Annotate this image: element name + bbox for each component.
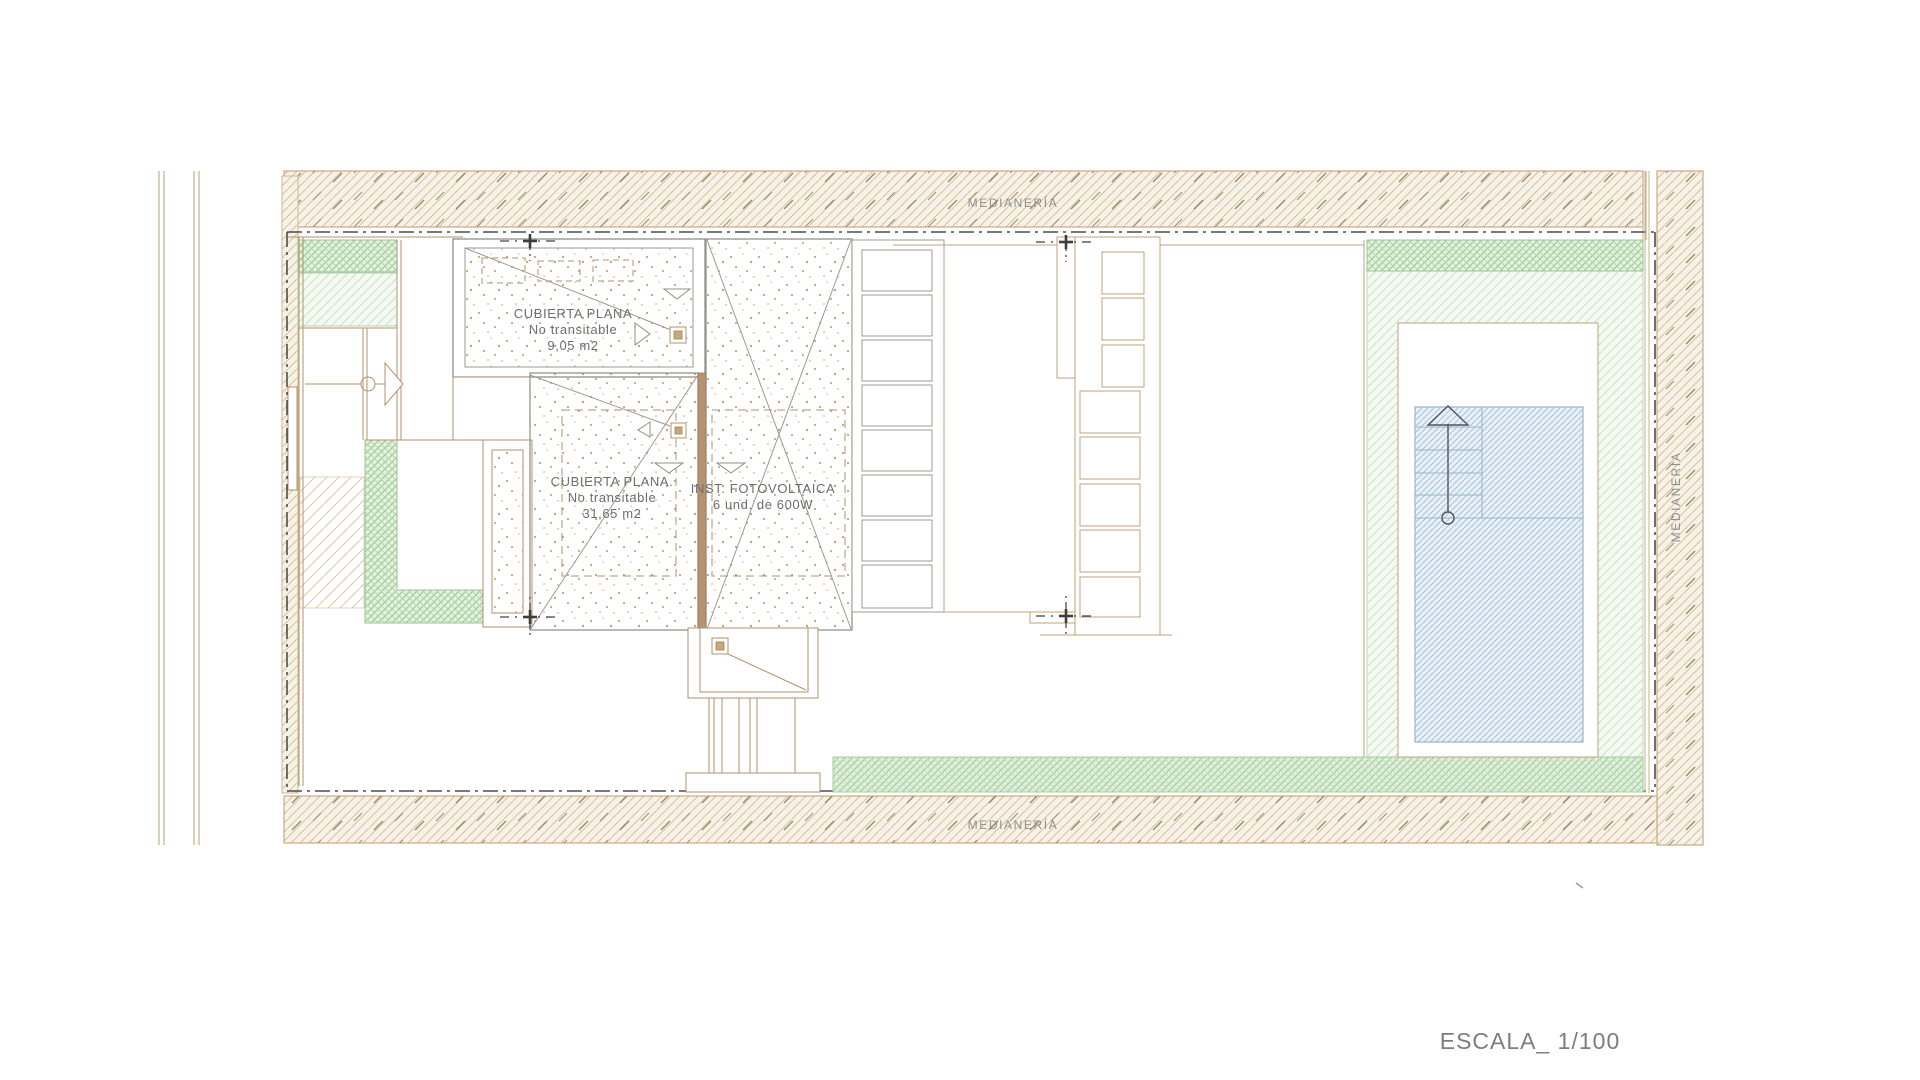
medianeria-bottom-label: MEDIANERÍA — [968, 817, 1059, 832]
louvre-strip-east — [1030, 237, 1364, 792]
roof-drain — [670, 327, 686, 343]
svg-text:No transitable: No transitable — [568, 490, 657, 505]
medianeria-right-label: MEDIANERÍA — [1668, 452, 1683, 543]
svg-text:INST. FOTOVOLTAICA: INST. FOTOVOLTAICA — [691, 481, 835, 496]
svg-text:CUBIERTA PLANA: CUBIERTA PLANA — [514, 306, 632, 321]
pool — [1415, 406, 1583, 742]
porch-stairs — [686, 628, 820, 792]
roof-plan-page: MEDIANERÍA MEDIANERÍA MEDIANERÍA CUBIERT… — [0, 0, 1920, 1080]
svg-text:31,65 m2: 31,65 m2 — [582, 506, 641, 521]
scale-label: ESCALA_ 1/100 — [1440, 1028, 1621, 1054]
svg-text:9,05 m2: 9,05 m2 — [547, 338, 598, 353]
band-top — [284, 171, 1643, 227]
entry-door-symbol — [305, 363, 403, 405]
svg-text:6 und. de 600W: 6 und. de 600W — [713, 497, 813, 512]
louvre-strip-west — [852, 240, 944, 612]
stair-treads — [709, 698, 795, 773]
svg-text:No transitable: No transitable — [529, 322, 618, 337]
svg-text:CUBIERTA PLANA.: CUBIERTA PLANA. — [551, 474, 674, 489]
stray-tick — [1576, 883, 1583, 888]
street-edge-lines — [159, 171, 199, 845]
roof-plan-drawing: MEDIANERÍA MEDIANERÍA MEDIANERÍA CUBIERT… — [0, 0, 1920, 1080]
medianeria-top-label: MEDIANERÍA — [968, 195, 1059, 210]
